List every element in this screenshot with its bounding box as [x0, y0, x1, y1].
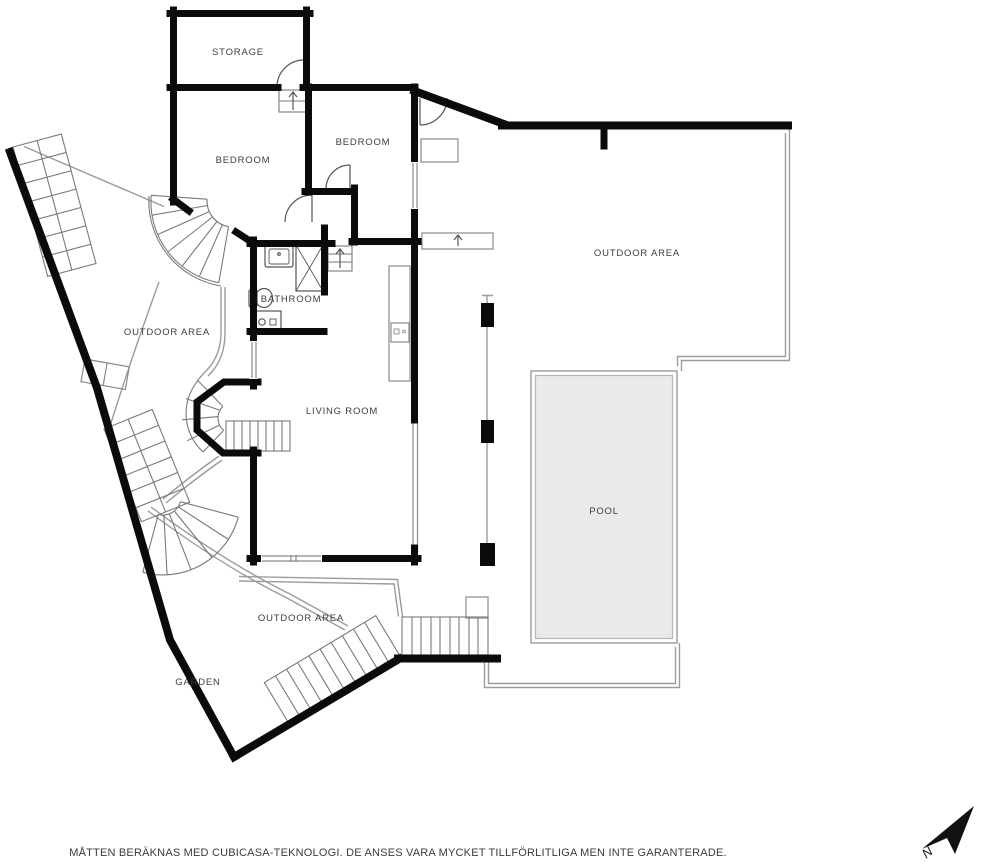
room-label-outdoor-west: OUTDOOR AREA	[124, 327, 210, 338]
room-label-bathroom: BATHROOM	[261, 294, 322, 305]
room-label-outdoor-south: OUTDOOR AREA	[258, 613, 344, 624]
deck-edge-south-inner	[239, 581, 399, 617]
floor-plan-page: STORAGE BEDROOM BEDROOM BATHROOM LIVING …	[0, 0, 984, 864]
staircase-turn-southwest	[143, 502, 239, 575]
door-arc-hall	[285, 195, 312, 222]
north-arrow-icon	[922, 806, 974, 854]
glass-wall-lines	[413, 420, 418, 552]
compass: N	[919, 806, 974, 861]
deck-edge-east-inner	[678, 133, 786, 366]
wall-entry-diagonal	[415, 91, 505, 124]
shower-icon	[296, 245, 323, 291]
deck-edge-east-outer	[682, 129, 790, 371]
porch-column-2	[481, 420, 494, 443]
path-bay-2	[166, 460, 222, 503]
window-bedroom2	[411, 162, 419, 209]
room-label-storage: STORAGE	[212, 47, 264, 58]
wall-site-south-diagonal	[234, 659, 399, 757]
deck-boundary-layer	[24, 129, 790, 688]
wall-stub-bedroom1	[173, 199, 189, 211]
path-fan-to-garden	[110, 282, 159, 426]
floor-plan-svg: STORAGE BEDROOM BEDROOM BATHROOM LIVING …	[0, 0, 984, 864]
room-label-living-room: LIVING ROOM	[306, 406, 378, 417]
windows-layer	[250, 162, 419, 563]
staircase-bay-steps	[226, 421, 290, 451]
window-living-south	[261, 555, 322, 563]
hall-stair-arrow	[336, 249, 344, 268]
entry-step-arrow	[454, 235, 462, 246]
window-living-west	[250, 341, 258, 379]
bathroom-sink-icon	[265, 246, 293, 267]
entry-wardrobe	[421, 139, 458, 162]
room-label-bedroom-1: BEDROOM	[216, 155, 271, 166]
stair-landing	[466, 597, 488, 618]
porch-column-3	[480, 543, 495, 566]
room-label-garden: GARDEN	[175, 677, 220, 688]
path-bay-1	[163, 456, 219, 499]
room-label-pool: POOL	[589, 506, 619, 517]
path-garden-1	[151, 507, 348, 626]
path-west-2	[208, 287, 225, 376]
door-arc-bedroom2	[326, 165, 350, 189]
kitchen-counter	[389, 266, 410, 381]
porch-column-1	[481, 303, 494, 327]
room-label-bedroom-2: BEDROOM	[336, 137, 391, 148]
fixtures-layer	[81, 60, 493, 389]
deck-edge-southeast-outer	[485, 643, 680, 688]
staircase-bay-winder	[182, 381, 224, 452]
door-arc-storage	[277, 60, 305, 87]
wall-stub-bathroom	[236, 232, 253, 243]
compass-north-label: N	[919, 843, 936, 861]
deck-edge-southeast-inner	[489, 647, 676, 684]
disclaimer-text: MÅTTEN BERÄKNAS MED CUBICASA-TEKNOLOGI. …	[69, 846, 727, 859]
room-label-outdoor-east: OUTDOOR AREA	[594, 248, 680, 259]
staircase-pool	[402, 617, 488, 655]
